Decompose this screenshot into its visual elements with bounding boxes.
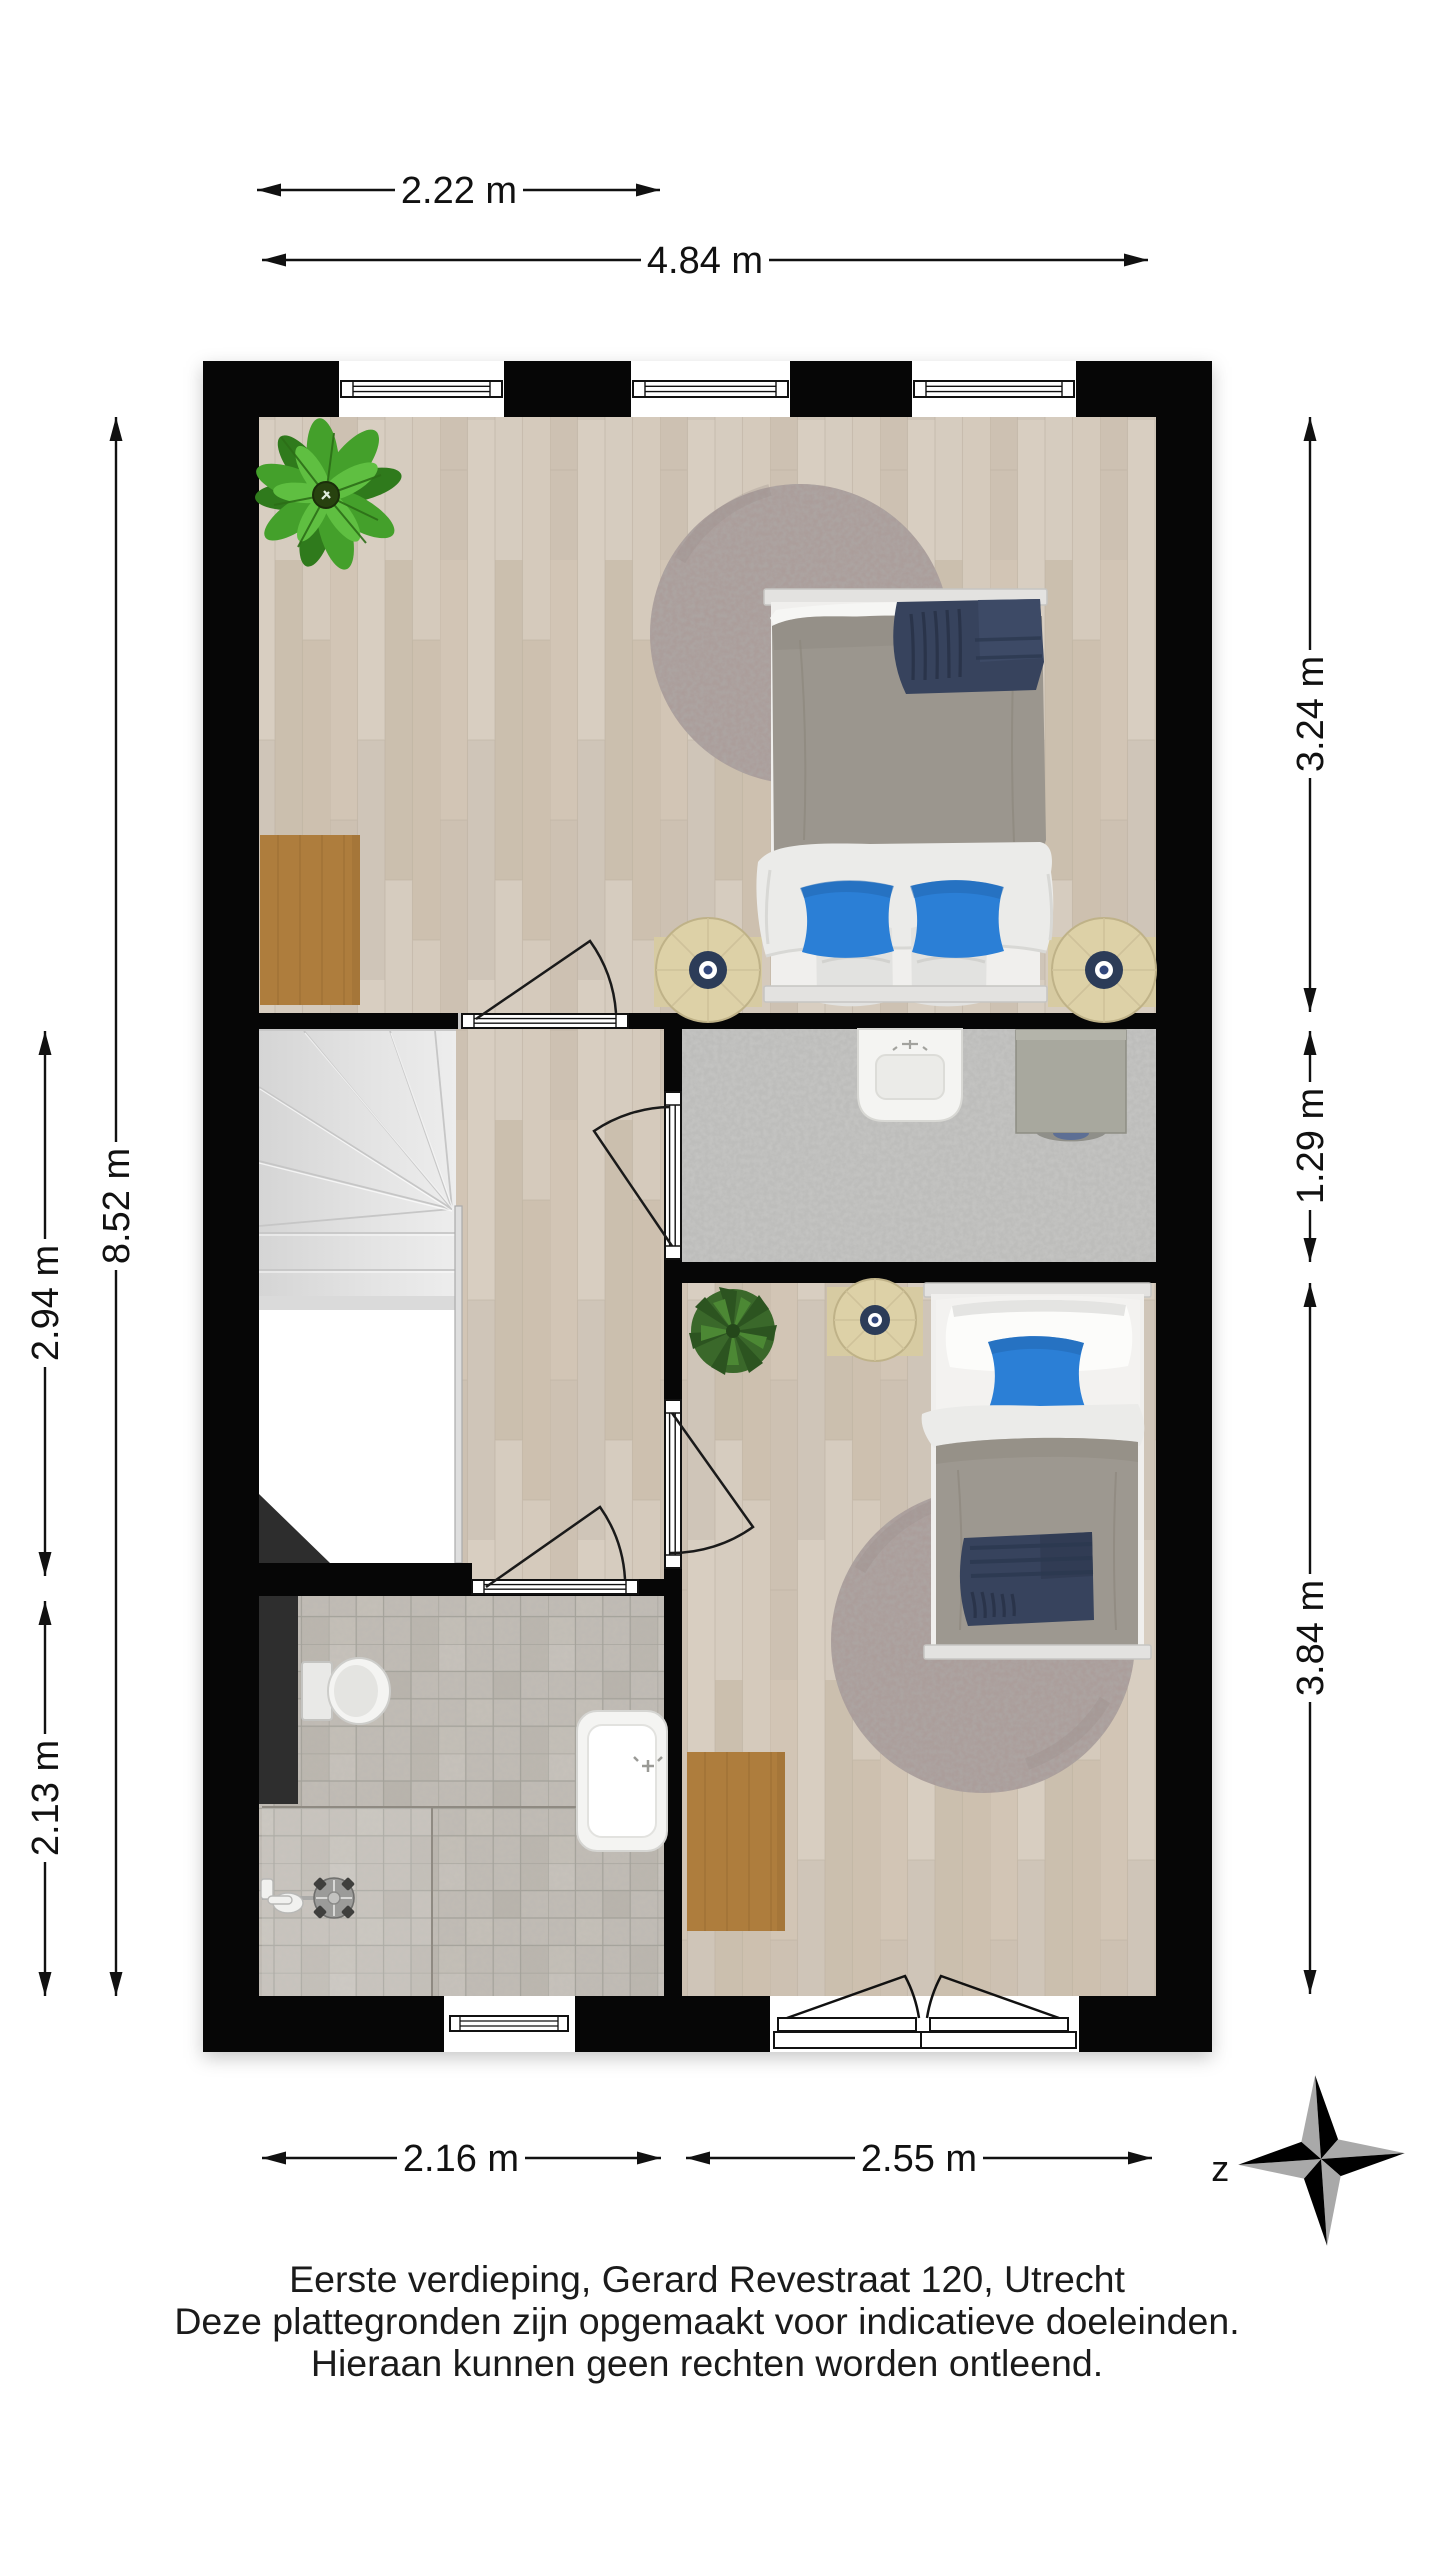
- svg-text:2.13 m: 2.13 m: [25, 1740, 67, 1856]
- svg-text:1.29 m: 1.29 m: [1290, 1088, 1332, 1204]
- svg-text:3.24 m: 3.24 m: [1290, 656, 1332, 772]
- svg-text:2.55 m: 2.55 m: [861, 2138, 977, 2180]
- svg-text:z: z: [1211, 2148, 1229, 2189]
- svg-text:Deze plattegronden zijn opgema: Deze plattegronden zijn opgemaakt voor i…: [174, 2300, 1239, 2342]
- svg-text:Hieraan kunnen geen rechten wo: Hieraan kunnen geen rechten worden ontle…: [311, 2342, 1103, 2384]
- svg-text:Eerste verdieping, Gerard Reve: Eerste verdieping, Gerard Revestraat 120…: [289, 2258, 1125, 2300]
- svg-text:4.84 m: 4.84 m: [647, 240, 763, 282]
- svg-text:2.22 m: 2.22 m: [401, 170, 517, 212]
- svg-text:3.84 m: 3.84 m: [1290, 1580, 1332, 1696]
- svg-text:2.94 m: 2.94 m: [25, 1245, 67, 1361]
- svg-text:8.52 m: 8.52 m: [96, 1148, 138, 1264]
- svg-text:2.16 m: 2.16 m: [403, 2138, 519, 2180]
